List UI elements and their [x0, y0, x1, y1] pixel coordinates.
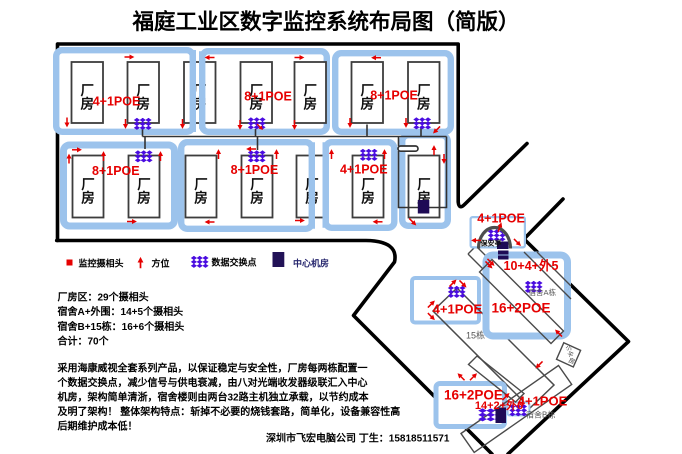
svg-text:14+2+外6: 14+2+外6 [475, 398, 523, 412]
svg-text:8+1POE: 8+1POE [231, 163, 279, 177]
svg-text:房: 房 [250, 190, 264, 206]
svg-text:房: 房 [194, 190, 208, 206]
svg-text:宿舍B+15栋：16+6个摄相头: 宿舍B+15栋：16+6个摄相头 [58, 320, 185, 333]
svg-text:采用海康威视全套系列产品，以保证稳定与安全性，厂房每两栋配置: 采用海康威视全套系列产品，以保证稳定与安全性，厂房每两栋配置一 [57, 361, 368, 374]
svg-text:中心机房: 中心机房 [293, 258, 329, 269]
svg-text:16+2POE: 16+2POE [492, 301, 551, 316]
svg-text:4+1POE: 4+1POE [93, 95, 141, 109]
svg-text:4+1POE: 4+1POE [433, 302, 483, 317]
svg-text:机房，架构简单清浙，宿舍楼则由两台32路主机独立承载，以节约: 机房，架构简单清浙，宿舍楼则由两台32路主机独立承载，以节约成本 [58, 391, 370, 404]
svg-text:深圳市飞宏电脑公司 丁生：15818511571: 深圳市飞宏电脑公司 丁生：15818511571 [266, 432, 450, 445]
svg-text:厂房区：29个摄相头: 厂房区：29个摄相头 [58, 291, 149, 304]
svg-text:宿舍B栋: 宿舍B栋 [526, 410, 555, 420]
svg-text:个数据交换点，减少信号与供电衰减，由八对光端收发器级联汇入中: 个数据交换点，减少信号与供电衰减，由八对光端收发器级联汇入中心 [57, 376, 368, 389]
svg-text:房: 房 [417, 96, 431, 112]
svg-text:4+1POE: 4+1POE [518, 394, 568, 409]
svg-text:后期维护成本低！: 后期维护成本低！ [58, 420, 138, 433]
svg-text:8+1POE: 8+1POE [370, 89, 418, 103]
svg-text:数据交换点: 数据交换点 [212, 257, 257, 268]
svg-text:房: 房 [81, 190, 95, 206]
svg-text:房: 房 [361, 190, 375, 206]
svg-text:福庭工业区数字监控系统布局图（简版）: 福庭工业区数字监控系统布局图（简版） [131, 9, 519, 34]
svg-text:房: 房 [137, 190, 151, 206]
svg-text:8+1POE: 8+1POE [244, 90, 292, 104]
svg-text:及明了架构！ 整体架构特点：斩掉不必要的烧钱套路，简单化，设: 及明了架构！ 整体架构特点：斩掉不必要的烧钱套路，简单化，设备兼容性高 [58, 405, 401, 418]
svg-text:宿舍A+外围：14+5个摄相头: 宿舍A+外围：14+5个摄相头 [58, 305, 184, 318]
svg-text:房: 房 [304, 96, 318, 112]
svg-text:4+1POE: 4+1POE [340, 163, 388, 177]
svg-text:15栋: 15栋 [466, 330, 485, 341]
svg-text:保安亭: 保安亭 [480, 239, 502, 248]
svg-text:监控摄相头: 监控摄相头 [79, 258, 124, 269]
svg-text:4+1POE: 4+1POE [477, 212, 525, 226]
svg-text:合计：70个: 合计：70个 [57, 334, 110, 347]
svg-text:8+1POE: 8+1POE [92, 164, 140, 178]
svg-text:方位: 方位 [152, 258, 170, 269]
svg-text:宿舍A栋: 宿舍A栋 [529, 287, 557, 297]
svg-text:10+4+外5: 10+4+外5 [504, 258, 559, 273]
